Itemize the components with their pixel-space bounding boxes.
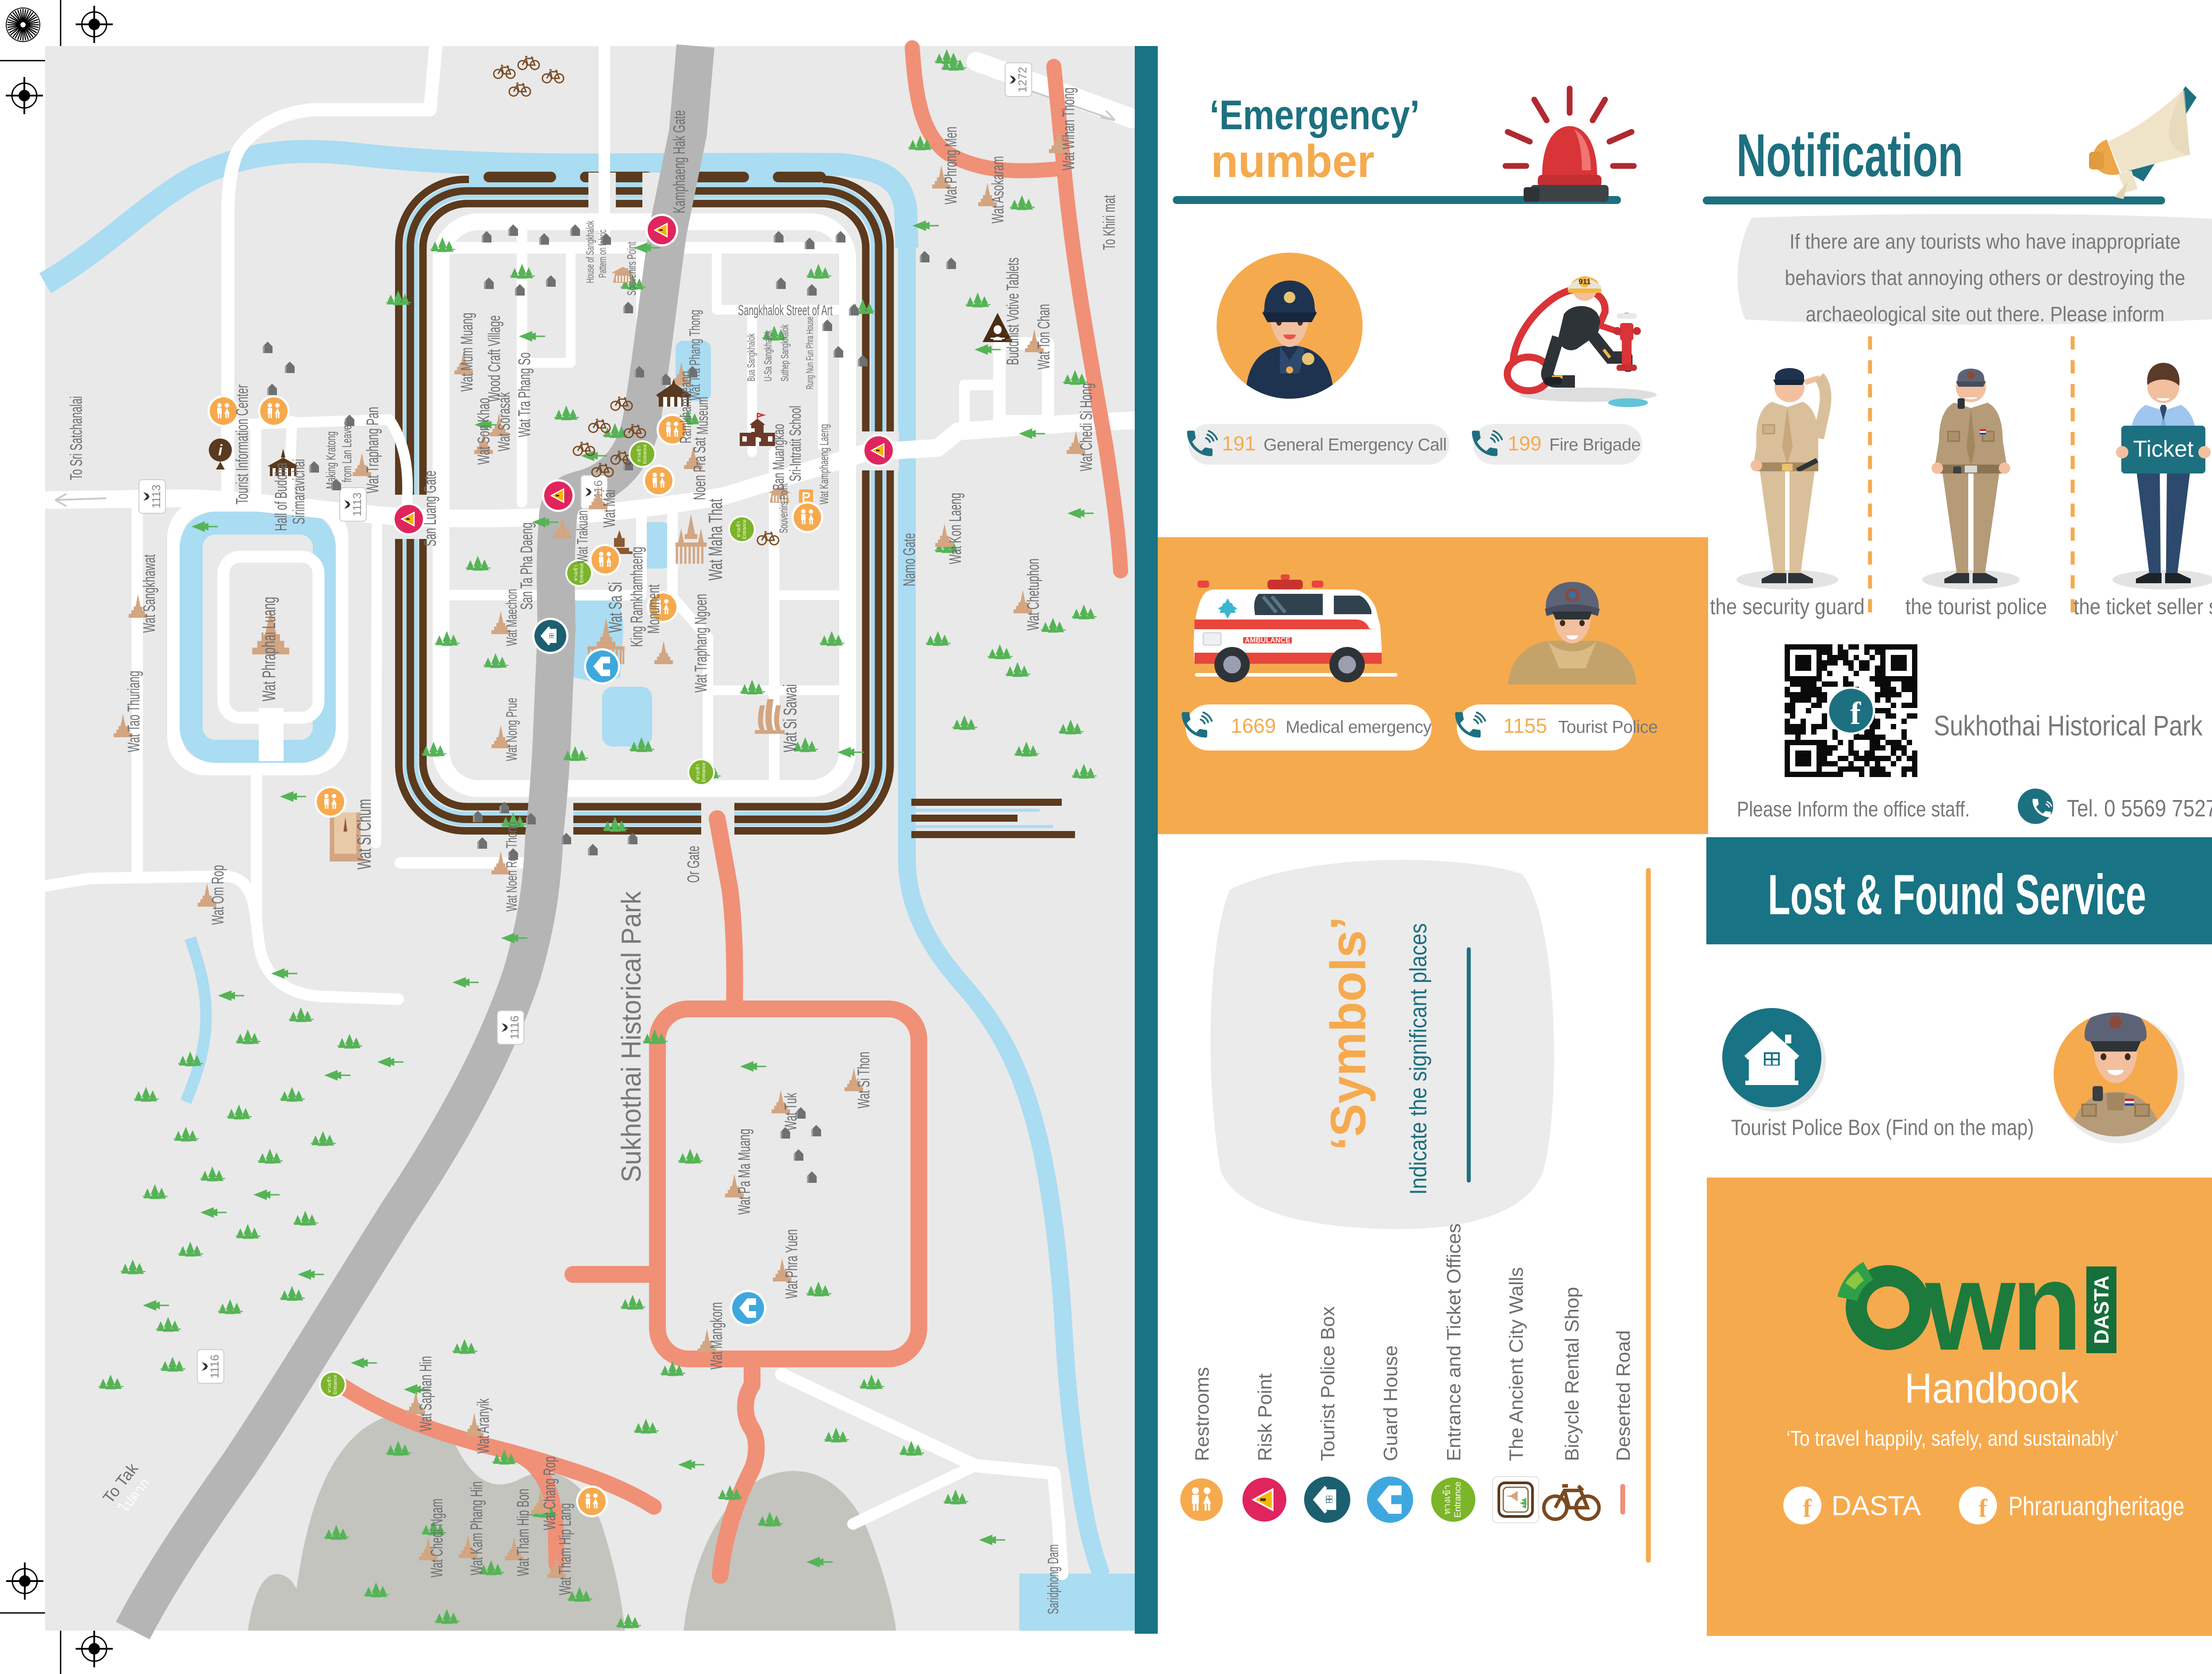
svg-text:Wat Si Thon: Wat Si Thon [854,1052,873,1108]
svg-text:Wat Nong Prue: Wat Nong Prue [503,698,520,761]
svg-text:Kamphaeng Hak Gate: Kamphaeng Hak Gate [669,110,688,213]
svg-text:Wat Maha That: Wat Maha That [704,499,726,581]
svg-text:Wat Pa Ma Muang: Wat Pa Ma Muang [734,1129,753,1215]
svg-text:Fire Brigade: Fire Brigade [1549,435,1640,454]
svg-text:AMBULANCE: AMBULANCE [1244,637,1290,644]
svg-text:Namo Gate: Namo Gate [899,533,918,586]
svg-text:DASTA: DASTA [1832,1491,1921,1521]
svg-text:1113: 1113 [350,493,364,516]
svg-text:‘Emergency’: ‘Emergency’ [1210,92,1420,139]
svg-text:Handbook: Handbook [1905,1365,2079,1412]
svg-text:Guard House: Guard House [1380,1345,1402,1461]
svg-text:Wat Aranyik: Wat Aranyik [473,1398,492,1454]
svg-text:Wat Tham Hip Bon: Wat Tham Hip Bon [513,1489,532,1576]
svg-text:Entrance and Ticket Offices: Entrance and Ticket Offices [1443,1224,1465,1461]
svg-text:number: number [1211,135,1375,187]
svg-text:‘To travel happily, safely, an: ‘To travel happily, safely, and sustaina… [1786,1427,2119,1451]
svg-text:Wat Tra Phang So: Wat Tra Phang So [515,352,534,437]
svg-text:Wood Craft Village: Wood Craft Village [484,315,503,402]
svg-text:Wat Om Rop: Wat Om Rop [208,865,227,925]
svg-text:i: i [218,442,223,459]
svg-text:Wat Kamphaeng Laeng: Wat Kamphaeng Laeng [817,424,831,504]
svg-text:behaviors that annoying others: behaviors that annoying others or destro… [1785,267,2185,290]
svg-text:199: 199 [1508,432,1542,455]
svg-text:Wat Saphan Hin: Wat Saphan Hin [416,1356,435,1432]
svg-text:Wat Chedi Si Hong: Wat Chedi Si Hong [1076,383,1095,471]
svg-text:Please Inform the office staff: Please Inform the office staff. [1737,798,1970,821]
svg-text:the tourist police: the tourist police [1905,594,2047,619]
svg-text:Suthep Sangkhalok: Suthep Sangkhalok [780,324,791,381]
svg-text:1116: 1116 [508,1016,521,1039]
svg-text:Wat Sa Si: Wat Sa Si [605,582,626,633]
svg-text:Wat Mai: Wat Mai [599,489,618,527]
svg-text:Souvenirs Point: Souvenirs Point [777,483,790,533]
svg-text:Medical emergency: Medical emergency [1286,718,1432,737]
svg-text:1155: 1155 [1503,714,1547,737]
svg-text:Wat Sangkhawat: Wat Sangkhawat [139,554,158,633]
svg-text:If there are any tourists wh: If there are any tourists who have inapp… [1790,231,2181,254]
svg-text:Wat Kon Laeng: Wat Kon Laeng [945,493,964,564]
svg-text:191: 191 [1222,432,1256,455]
svg-text:San Ta Pha Daeng: San Ta Pha Daeng [517,523,536,610]
svg-text:Wat Tuk: Wat Tuk [781,1093,800,1131]
svg-text:Tourist Police Box: Tourist Police Box [1317,1306,1339,1461]
svg-text:1116: 1116 [208,1355,221,1378]
svg-text:Risk Point: Risk Point [1254,1374,1276,1461]
svg-text:Souvenirs Point: Souvenirs Point [625,242,638,296]
svg-text:To Sri Satchanalai: To Sri Satchanalai [66,396,85,480]
svg-text:Wat Noen Ron Thong: Wat Noen Ron Thong [503,822,520,912]
svg-text:f: f [1803,1494,1812,1523]
svg-text:Sangkhalok Street of Art: Sangkhalok Street of Art [738,302,833,318]
svg-text:Wat Trakuan: Wat Trakuan [574,510,591,563]
svg-text:Phraruangheritage: Phraruangheritage [2008,1491,2185,1521]
svg-text:Wat Si Sawai: Wat Si Sawai [780,684,801,752]
svg-text:Hall of Buddha: Hall of Buddha [271,462,290,531]
svg-text:Sri-Intratit School: Sri-Intratit School [787,406,805,481]
svg-text:Notification: Notification [1736,121,1963,189]
svg-text:Deserted Road: Deserted Road [1613,1330,1634,1461]
svg-text:Bicycle Rental Shop: Bicycle Rental Shop [1561,1287,1583,1461]
svg-text:Restrooms: Restrooms [1191,1367,1213,1461]
svg-text:DASTA: DASTA [2090,1275,2113,1344]
svg-text:Bua Sangkhalok: Bua Sangkhalok [746,334,757,381]
svg-text:Ticket: Ticket [2133,436,2194,462]
svg-text:Indicate the significant place: Indicate the significant places [1405,923,1432,1195]
svg-text:the security guard: the security guard [1710,594,1865,619]
svg-text:Sukhothai Historical Park: Sukhothai Historical Park [616,891,647,1182]
svg-text:Wat Tham Hip Lang: Wat Tham Hip Lang [555,1503,574,1595]
svg-text:Tel. 0 5569 7527: Tel. 0 5569 7527 [2067,795,2212,822]
svg-text:Wat Mangkorn: Wat Mangkorn [707,1302,726,1370]
svg-text:Wat Mum Muang: Wat Mum Muang [457,313,476,392]
svg-text:from Lan Leaves: from Lan Leaves [340,421,355,482]
svg-text:1113: 1113 [150,485,163,508]
svg-text:Ramkhamheang: Ramkhamheang [677,371,695,443]
svg-text:1272: 1272 [1016,67,1029,92]
svg-text:Wat Traphang Pan: Wat Traphang Pan [363,407,382,493]
svg-text:Tourist Police Box (Find on th: Tourist Police Box (Find on the map) [1731,1115,2034,1140]
svg-text:f: f [1850,696,1861,731]
svg-text:U-Sa Sangkhalok: U-Sa Sangkhalok [763,330,774,381]
svg-text:wn: wn [1924,1236,2078,1377]
svg-text:Wat Si Chum: Wat Si Chum [353,799,375,870]
svg-text:‘Symbols’: ‘Symbols’ [1321,916,1376,1151]
svg-text:Wat Ton Chan: Wat Ton Chan [1034,304,1053,369]
svg-text:Tourist Police: Tourist Police [1558,718,1658,737]
svg-text:Wat Asokaram: Wat Asokaram [988,156,1007,223]
svg-text:San Luang Gate: San Luang Gate [420,470,439,546]
svg-text:Wat Tao Thuriang: Wat Tao Thuriang [124,671,143,752]
svg-text:archaeological site out there.: archaeological site out there. Please in… [1805,303,2164,326]
svg-text:Or Gate: Or Gate [684,846,703,883]
svg-text:Buddhist Votive Tablets: Buddhist Votive Tablets [1003,258,1022,365]
svg-text:the ticket seller staff: the ticket seller staff [2074,594,2212,619]
svg-text:Wat Wihan Thong: Wat Wihan Thong [1059,88,1078,170]
svg-text:The Ancient City Walls: The Ancient City Walls [1505,1267,1527,1461]
svg-text:Wat Traphang Ngoen: Wat Traphang Ngoen [691,594,710,693]
svg-text:Rung Nun Fun Phra House: Rung Nun Fun Phra House [804,317,815,389]
svg-text:Sirimaravichai: Sirimaravichai [289,459,308,524]
svg-text:Wat Son Khao: Wat Son Khao [474,398,493,465]
svg-text:To Khiri mat: To Khiri mat [1099,195,1118,250]
svg-text:Monument: Monument [644,585,663,634]
svg-text:Museum: Museum [694,396,712,435]
svg-text:Wat Phraphai Luang: Wat Phraphai Luang [259,597,280,701]
svg-text:Saridphong Dam: Saridphong Dam [1045,1544,1061,1614]
svg-text:Wat Chetuphon: Wat Chetuphon [1023,558,1042,631]
svg-text:House of Sangkhalok: House of Sangkhalok [585,221,596,283]
svg-text:General Emergency Call: General Emergency Call [1263,435,1447,454]
svg-text:f: f [1978,1494,1987,1523]
svg-text:Lost & Found Service: Lost & Found Service [1768,863,2146,926]
svg-text:Tourist Information Center: Tourist Information Center [232,385,251,504]
svg-text:Making Kratong: Making Kratong [324,431,339,489]
svg-text:Pattern on fabric: Pattern on fabric [597,230,609,278]
svg-text:Noen Pra Sat: Noen Pra Sat [690,437,709,500]
svg-text:Sukhothai Historical Park: Sukhothai Historical Park [1934,710,2203,742]
svg-text:Ban Muangkao: Ban Muangkao [770,424,788,490]
svg-text:911: 911 [1578,277,1590,286]
svg-text:1669: 1669 [1231,714,1276,737]
svg-text:King Ramkhamhaeng: King Ramkhamhaeng [627,546,646,647]
svg-text:Wat Phra Yuen: Wat Phra Yuen [782,1229,801,1299]
svg-text:Wat Kam Phang Hin: Wat Kam Phang Hin [467,1481,486,1575]
svg-text:Wat Chedi Ngam: Wat Chedi Ngam [427,1499,446,1578]
svg-text:Wat Phrong Men: Wat Phrong Men [941,127,960,204]
